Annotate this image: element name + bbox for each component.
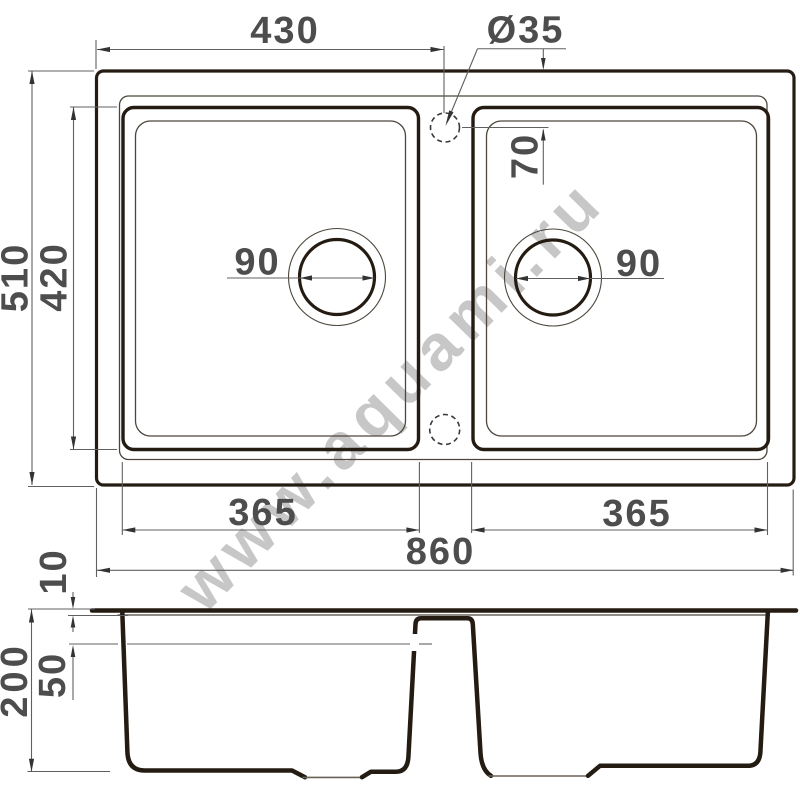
svg-text:www.aquami.ru: www.aquami.ru xyxy=(162,163,618,625)
svg-text:365: 365 xyxy=(602,493,671,535)
svg-text:365: 365 xyxy=(228,492,297,534)
svg-text:Ø35: Ø35 xyxy=(487,10,565,52)
svg-text:430: 430 xyxy=(250,10,319,52)
svg-text:50: 50 xyxy=(32,652,74,698)
svg-text:510: 510 xyxy=(0,243,37,312)
svg-text:90: 90 xyxy=(234,242,280,284)
svg-text:200: 200 xyxy=(0,642,36,717)
svg-text:90: 90 xyxy=(616,243,662,285)
svg-text:860: 860 xyxy=(406,531,475,573)
svg-text:70: 70 xyxy=(505,133,547,179)
svg-text:10: 10 xyxy=(33,548,75,594)
svg-text:420: 420 xyxy=(34,242,76,311)
